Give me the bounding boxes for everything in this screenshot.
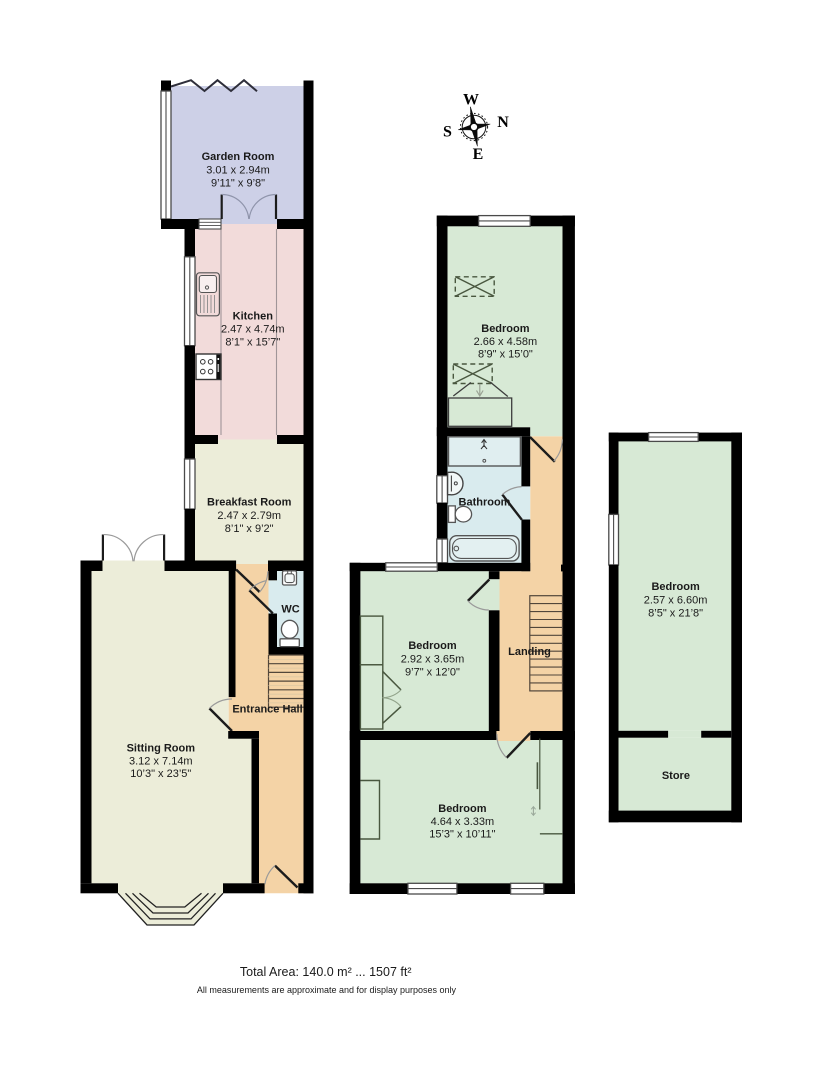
svg-text:2.66 x 4.58m: 2.66 x 4.58m	[474, 336, 538, 348]
svg-text:2.92 x 3.65m: 2.92 x 3.65m	[401, 653, 465, 665]
svg-text:8’9" x 15’0": 8’9" x 15’0"	[478, 349, 533, 361]
svg-text:4.64 x 3.33m: 4.64 x 3.33m	[431, 816, 495, 828]
svg-text:E: E	[473, 146, 484, 163]
svg-text:2.47 x 4.74m: 2.47 x 4.74m	[221, 323, 285, 335]
svg-text:Sitting Room: Sitting Room	[127, 743, 196, 755]
svg-text:2.57 x 6.60m: 2.57 x 6.60m	[644, 594, 708, 606]
svg-text:All measurements are approxima: All measurements are approximate and for…	[197, 985, 457, 995]
svg-text:15’3" x 10’11": 15’3" x 10’11"	[429, 829, 495, 841]
svg-text:Landing: Landing	[508, 646, 551, 658]
svg-text:8’1" x 15’7": 8’1" x 15’7"	[225, 336, 280, 348]
svg-text:Bedroom: Bedroom	[481, 323, 530, 335]
svg-text:Garden Room: Garden Room	[202, 151, 275, 163]
svg-text:Bedroom: Bedroom	[438, 803, 487, 815]
svg-text:3.01 x 2.94m: 3.01 x 2.94m	[206, 164, 270, 176]
svg-text:Breakfast Room: Breakfast Room	[207, 497, 292, 509]
svg-text:9’7" x 12’0": 9’7" x 12’0"	[405, 667, 460, 679]
svg-text:Entrance Hall: Entrance Hall	[232, 704, 302, 716]
svg-text:Total Area: 140.0 m² ... 1507: Total Area: 140.0 m² ... 1507 ft²	[240, 965, 412, 979]
svg-text:Bedroom: Bedroom	[651, 581, 700, 593]
svg-text:W: W	[463, 92, 479, 109]
svg-text:10’3" x 23’5": 10’3" x 23’5"	[130, 768, 191, 780]
svg-text:Bedroom: Bedroom	[408, 640, 457, 652]
svg-text:S: S	[443, 124, 452, 141]
svg-text:3.12 x 7.14m: 3.12 x 7.14m	[129, 755, 193, 767]
svg-text:Bathroom: Bathroom	[459, 497, 511, 509]
svg-text:Store: Store	[662, 770, 690, 782]
svg-text:2.47 x 2.79m: 2.47 x 2.79m	[217, 510, 281, 522]
svg-text:9’11" x 9’8": 9’11" x 9’8"	[211, 178, 265, 190]
svg-text:WC: WC	[281, 604, 299, 616]
svg-text:Kitchen: Kitchen	[233, 310, 274, 322]
svg-text:N: N	[497, 114, 509, 131]
svg-text:8’5" x 21’8": 8’5" x 21’8"	[648, 608, 703, 620]
svg-text:8’1" x 9’2": 8’1" x 9’2"	[225, 523, 274, 535]
